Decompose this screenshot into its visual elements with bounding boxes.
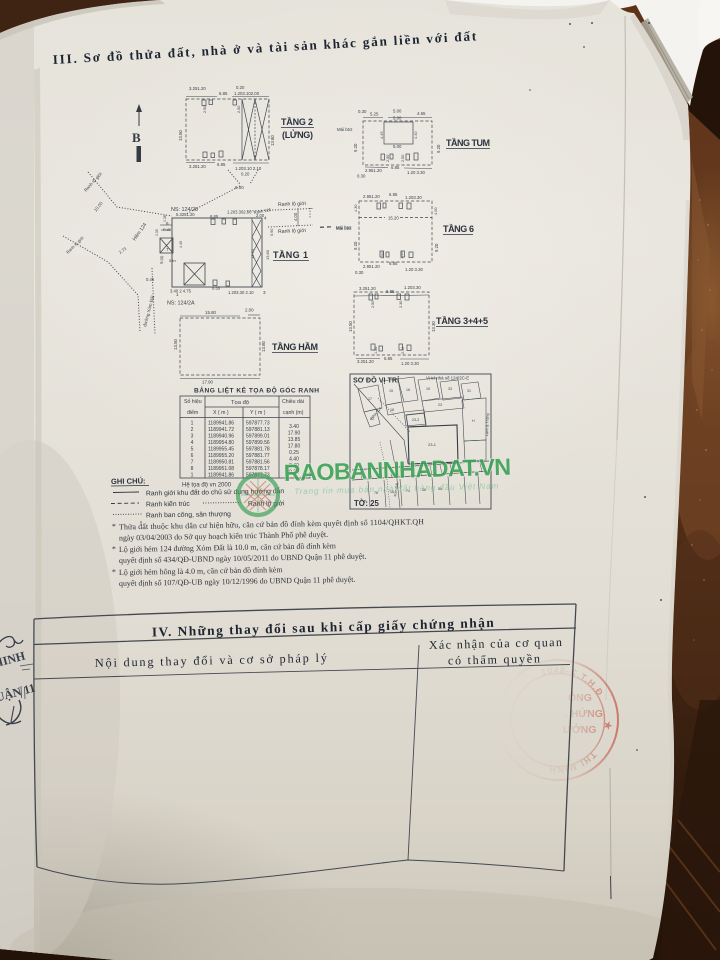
svg-text:597899.01: 597899.01 xyxy=(246,434,270,440)
svg-text:2.30: 2.30 xyxy=(399,301,403,308)
svg-text:cạnh (m): cạnh (m) xyxy=(283,410,304,416)
svg-text:Ranh lộ giới: Ranh lộ giới xyxy=(278,201,306,208)
svg-text:23: 23 xyxy=(438,403,442,407)
svg-text:B: B xyxy=(132,130,141,145)
svg-text:*: * xyxy=(112,522,116,531)
svg-text:0.38: 0.38 xyxy=(163,215,167,222)
svg-text:Ranh ban công, sân thượng: Ranh ban công, sân thượng xyxy=(146,511,231,519)
svg-text:R.đổ: R.đổ xyxy=(163,228,171,232)
svg-text:1.203.30 2.10: 1.203.30 2.10 xyxy=(228,290,254,295)
svg-text:4: 4 xyxy=(264,216,267,221)
svg-text:597881.13: 597881.13 xyxy=(246,427,270,433)
svg-text:*: * xyxy=(112,567,116,576)
svg-text:1.203.30: 1.203.30 xyxy=(405,195,422,200)
svg-text:1189955.45: 1189955.45 xyxy=(208,447,234,453)
svg-text:19: 19 xyxy=(426,387,430,391)
svg-text:3.251.20: 3.251.20 xyxy=(189,86,206,91)
svg-text:33: 33 xyxy=(448,387,452,391)
svg-text:4.00: 4.00 xyxy=(433,207,438,215)
svg-text:6.85: 6.85 xyxy=(386,289,395,294)
svg-text:1189955.20: 1189955.20 xyxy=(208,453,234,459)
svg-text:Ranh lộ giới: Ranh lộ giới xyxy=(278,228,306,235)
svg-text:1189941.86: 1189941.86 xyxy=(208,421,234,427)
svg-text:2.951.20: 2.951.20 xyxy=(365,168,382,173)
svg-text:9.20: 9.20 xyxy=(353,241,358,250)
svg-text:0.25: 0.25 xyxy=(289,450,299,456)
svg-text:7: 7 xyxy=(191,460,194,466)
svg-text:1.20 3.30: 1.20 3.30 xyxy=(405,267,424,272)
svg-text:5: 5 xyxy=(191,447,194,453)
svg-text:ƯỞNG: ƯỞNG xyxy=(563,723,596,736)
svg-text:2.951.20: 2.951.20 xyxy=(363,264,380,269)
svg-text:3.251.20: 3.251.20 xyxy=(189,164,206,169)
svg-text:597878.17: 597878.17 xyxy=(246,466,270,472)
svg-text:0.30: 0.30 xyxy=(357,174,366,179)
svg-text:1.203.102.00: 1.203.102.00 xyxy=(234,91,260,96)
svg-text:1: 1 xyxy=(191,473,194,479)
svg-text:6.85: 6.85 xyxy=(219,91,228,96)
svg-text:TẦNG 1: TẦNG 1 xyxy=(273,250,308,260)
svg-text:17: 17 xyxy=(368,397,372,401)
svg-text:15.80: 15.80 xyxy=(205,310,217,315)
svg-text:NS: 124/2A: NS: 124/2A xyxy=(167,301,195,307)
svg-text:0.90: 0.90 xyxy=(270,229,274,236)
svg-text:15.20: 15.20 xyxy=(388,216,399,221)
svg-text:1189950.81: 1189950.81 xyxy=(208,460,234,466)
svg-text:597881.78: 597881.78 xyxy=(246,447,270,453)
svg-text:2.10: 2.10 xyxy=(401,347,405,354)
svg-text:597877.73: 597877.73 xyxy=(246,421,270,427)
svg-text:1.50: 1.50 xyxy=(381,252,385,259)
svg-text:31: 31 xyxy=(467,389,471,393)
svg-text:0.35: 0.35 xyxy=(155,229,159,236)
svg-text:6.00: 6.00 xyxy=(235,185,244,190)
svg-text:TẦNG 2: TẦNG 2 xyxy=(281,117,313,127)
svg-text:17.80: 17.80 xyxy=(288,444,301,450)
svg-text:TẦNG HẦM: TẦNG HẦM xyxy=(272,342,318,352)
svg-text:1189951.08: 1189951.08 xyxy=(208,466,234,472)
svg-text:9.20: 9.20 xyxy=(353,143,358,152)
svg-text:3.40: 3.40 xyxy=(289,424,299,430)
svg-text:0.30: 0.30 xyxy=(358,109,367,114)
svg-text:9.20: 9.20 xyxy=(436,144,441,153)
svg-text:2.951.20: 2.951.20 xyxy=(363,194,380,199)
svg-text:13.50: 13.50 xyxy=(173,338,178,350)
svg-text:13.50: 13.50 xyxy=(178,130,183,141)
svg-text:X ( m ): X ( m ) xyxy=(213,410,229,416)
svg-text:Tọa độ: Tọa độ xyxy=(231,400,249,406)
svg-text:18: 18 xyxy=(390,408,394,412)
svg-text:TỜ: 25: TỜ: 25 xyxy=(354,499,380,508)
svg-text:1.203.30: 1.203.30 xyxy=(404,285,421,290)
svg-text:6.85: 6.85 xyxy=(384,356,393,361)
svg-text:ỒNG: ỒNG xyxy=(568,691,592,704)
svg-text:4.45: 4.45 xyxy=(379,131,384,139)
svg-text:3.40 2 4.75: 3.40 2 4.75 xyxy=(170,289,192,294)
svg-text:597899.56: 597899.56 xyxy=(246,440,270,446)
svg-text:17.90: 17.90 xyxy=(202,380,214,385)
svg-text:2: 2 xyxy=(191,427,194,433)
svg-text:0.20: 0.20 xyxy=(236,85,245,90)
svg-text:1.203.302.00: 1.203.302.00 xyxy=(227,210,252,215)
svg-text:Lãnh B.Thăng: Lãnh B.Thăng xyxy=(485,413,490,436)
svg-text:4.65: 4.65 xyxy=(417,111,426,116)
svg-text:15: 15 xyxy=(389,389,393,393)
svg-text:4.00: 4.00 xyxy=(293,212,298,221)
svg-text:TẦNG 6: TẦNG 6 xyxy=(443,224,474,234)
svg-text:5.25: 5.25 xyxy=(370,112,379,117)
svg-text:Vị trí nhà số 124/2C-E: Vị trí nhà số 124/2C-E xyxy=(426,376,469,381)
svg-text:2.50: 2.50 xyxy=(386,155,390,162)
svg-text:6.55: 6.55 xyxy=(212,286,221,291)
svg-text:13.80: 13.80 xyxy=(261,340,266,352)
svg-text:6.85: 6.85 xyxy=(391,165,400,170)
svg-text:1.50: 1.50 xyxy=(400,252,404,259)
svg-text:6.85: 6.85 xyxy=(389,261,398,266)
svg-text:23-2: 23-2 xyxy=(412,418,419,422)
svg-text:Mái btct: Mái btct xyxy=(336,225,352,230)
svg-text:9.00: 9.00 xyxy=(159,255,164,264)
svg-text:13.70: 13.70 xyxy=(250,248,255,259)
svg-text:6.85: 6.85 xyxy=(210,214,219,219)
svg-text:16: 16 xyxy=(406,388,410,392)
svg-text:0.46: 0.46 xyxy=(146,277,155,282)
svg-text:13.50: 13.50 xyxy=(348,321,353,332)
svg-text:4.30: 4.30 xyxy=(353,204,358,212)
svg-text:13.80: 13.80 xyxy=(270,135,275,146)
svg-text:17.90: 17.90 xyxy=(288,431,301,437)
svg-text:TẦNG TUM: TẦNG TUM xyxy=(446,138,490,148)
svg-text:1.20 3.30: 1.20 3.30 xyxy=(407,170,426,175)
svg-text:5.3251.20: 5.3251.20 xyxy=(176,212,195,217)
svg-text:GHI CHÚ:: GHI CHÚ: xyxy=(111,476,146,486)
svg-text:TẦNG 3+4+5: TẦNG 3+4+5 xyxy=(436,316,488,326)
svg-text:6: 6 xyxy=(191,453,194,459)
svg-text:Chiều dài: Chiều dài xyxy=(282,399,304,405)
svg-text:3: 3 xyxy=(191,434,194,440)
svg-text:13.80: 13.80 xyxy=(265,249,270,260)
svg-text:9.20: 9.20 xyxy=(434,243,439,252)
svg-text:1.50: 1.50 xyxy=(374,347,378,354)
svg-text:4: 4 xyxy=(191,440,194,446)
svg-text:Hệ tọa độ vn 2000: Hệ tọa độ vn 2000 xyxy=(182,483,232,489)
svg-text:1189940.96: 1189940.96 xyxy=(208,434,234,440)
svg-text:5.00: 5.00 xyxy=(393,144,402,149)
svg-text:2.00: 2.00 xyxy=(245,308,254,313)
svg-text:BẢNG LIỆT KÊ TỌA ĐỘ GÓC RANH: BẢNG LIỆT KÊ TỌA ĐỘ GÓC RANH xyxy=(194,386,319,395)
svg-text:0.20: 0.20 xyxy=(241,172,250,177)
svg-text:2.50: 2.50 xyxy=(401,155,405,162)
svg-text:4.40: 4.40 xyxy=(179,241,183,248)
svg-text:53n: 53n xyxy=(169,258,176,263)
svg-text:điểm: điểm xyxy=(187,409,198,416)
svg-text:597881.56: 597881.56 xyxy=(246,460,270,466)
svg-text:13.85: 13.85 xyxy=(288,437,301,443)
svg-text:2.50: 2.50 xyxy=(237,106,241,113)
svg-text:Số hiệu: Số hiệu xyxy=(184,399,202,405)
svg-text:3.251.20: 3.251.20 xyxy=(359,286,376,291)
svg-text:4.40: 4.40 xyxy=(413,131,418,139)
svg-text:1189941.86: 1189941.86 xyxy=(208,473,234,479)
svg-text:597881.77: 597881.77 xyxy=(246,453,270,459)
svg-text:6.85: 6.85 xyxy=(389,192,398,197)
svg-text:2.50: 2.50 xyxy=(203,106,207,113)
svg-text:1189954.80: 1189954.80 xyxy=(208,440,234,446)
svg-text:8: 8 xyxy=(191,466,194,472)
svg-text:5.00: 5.00 xyxy=(393,116,402,121)
svg-text:H: H xyxy=(472,419,475,423)
svg-text:2.50: 2.50 xyxy=(371,301,375,308)
svg-text:. HỨNG: . HỨNG xyxy=(565,707,603,720)
svg-text:1.20 3.30: 1.20 3.30 xyxy=(401,361,420,366)
svg-text:7: 7 xyxy=(166,247,169,252)
svg-text:6.85: 6.85 xyxy=(217,162,226,167)
svg-text:Y ( m ): Y ( m ) xyxy=(250,410,266,416)
svg-text:3.251.20: 3.251.20 xyxy=(357,359,374,364)
svg-text:*: * xyxy=(112,544,116,553)
svg-text:Mái btct: Mái btct xyxy=(337,127,353,132)
svg-text:23-1: 23-1 xyxy=(428,442,437,447)
svg-text:5.00: 5.00 xyxy=(393,109,402,114)
svg-text:0.30: 0.30 xyxy=(355,270,364,275)
svg-text:(LỬNG): (LỬNG) xyxy=(282,129,313,140)
svg-text:1: 1 xyxy=(191,421,194,427)
svg-text:3: 3 xyxy=(263,290,266,295)
svg-text:1189941.72: 1189941.72 xyxy=(208,427,234,433)
